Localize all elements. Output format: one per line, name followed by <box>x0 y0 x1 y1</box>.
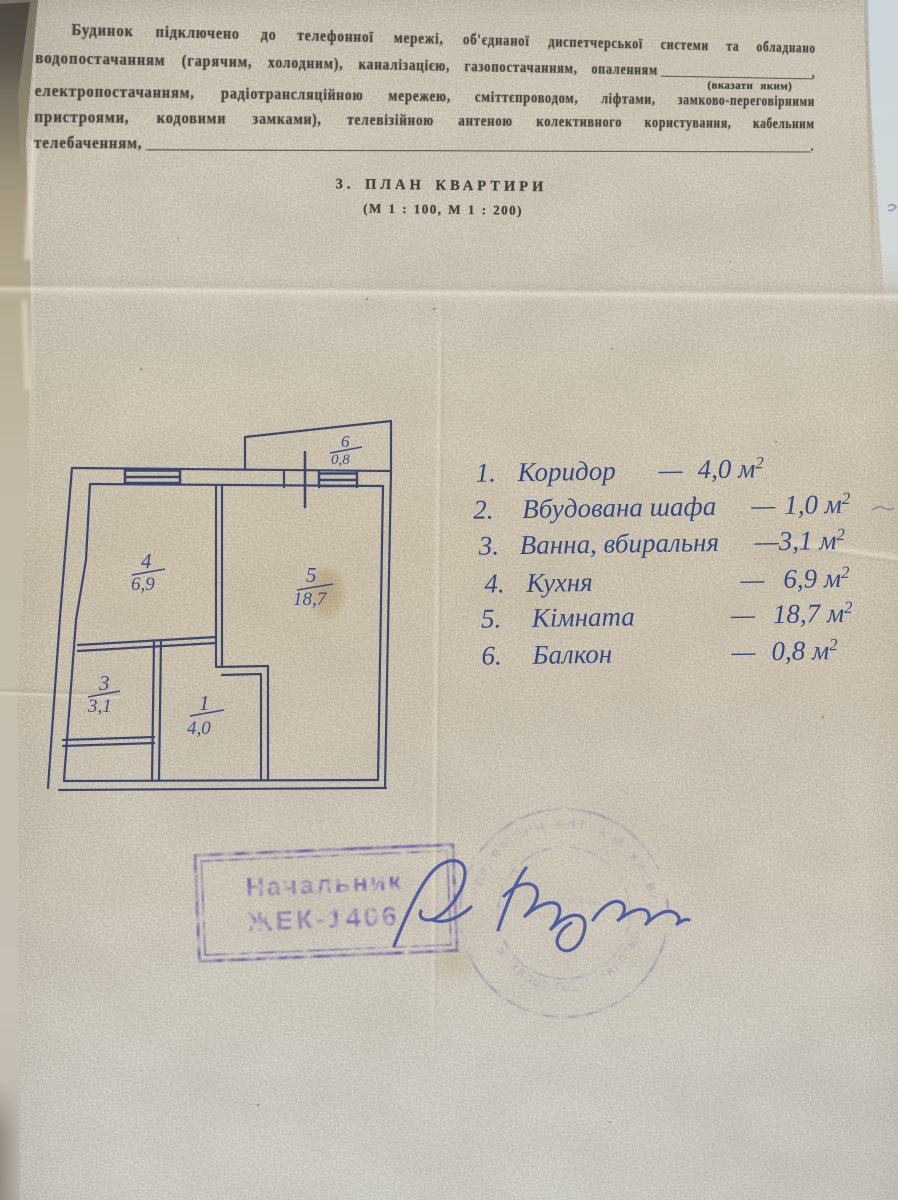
svg-text:3. Ванна, вбиральня—3,1 м2: 3. Ванна, вбиральня—3,1 м2 <box>478 525 846 561</box>
svg-text:Начальник: Начальник <box>245 866 403 903</box>
svg-text:ЖЕК-1406: ЖЕК-1406 <box>246 901 400 937</box>
svg-text:18,7: 18,7 <box>293 589 328 610</box>
svg-text:6: 6 <box>341 432 350 451</box>
svg-text:5. Кімната—18,7 м2: 5. Кімната—18,7 м2 <box>481 598 854 634</box>
svg-text:5: 5 <box>306 563 317 587</box>
svg-text:2. Вбудована шафа—1,0 м2: 2. Вбудована шафа—1,0 м2 <box>473 489 851 525</box>
svg-text:6. Балкон—0,8 м2: 6. Балкон—0,8 м2 <box>481 635 838 671</box>
svg-text:0,8: 0,8 <box>331 452 350 468</box>
svg-text:4,0: 4,0 <box>187 718 211 739</box>
svg-text:3,1: 3,1 <box>87 696 112 717</box>
svg-text:1. Коридор—4,0 м2: 1. Коридор—4,0 м2 <box>475 453 764 488</box>
svg-text:3: 3 <box>98 671 110 695</box>
svg-text:6,9: 6,9 <box>131 574 155 595</box>
svg-text:ЖИТЛОВЕ ГОСПОДАРСТВО: ЖИТЛОВЕ ГОСПОДАРСТВО <box>493 928 643 994</box>
svg-text:4: 4 <box>141 549 152 573</box>
svg-text:4. Кухня—6,9 м2: 4. Кухня—6,9 м2 <box>484 563 850 599</box>
svg-text:1: 1 <box>199 691 210 715</box>
